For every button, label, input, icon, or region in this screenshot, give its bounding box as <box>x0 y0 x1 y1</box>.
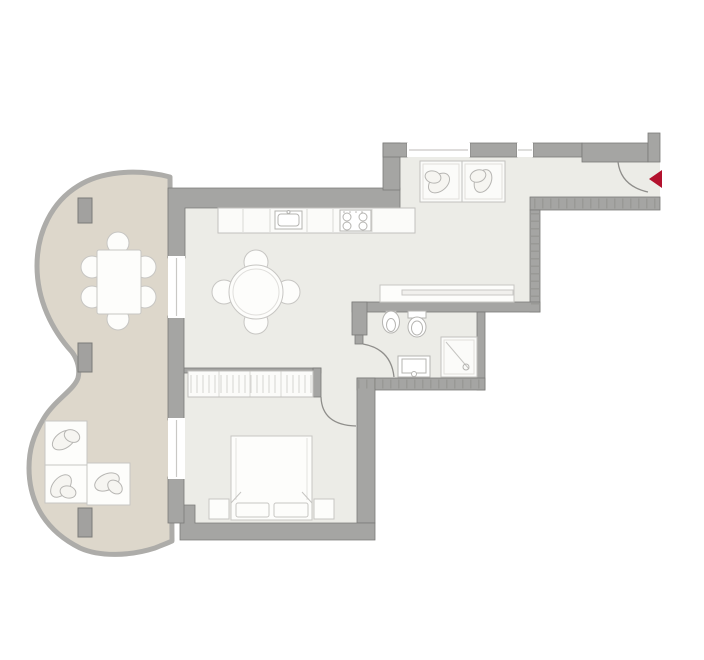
wall <box>168 477 184 523</box>
nightstand <box>209 499 229 519</box>
console-table <box>380 285 514 302</box>
wall-door-stub <box>355 335 363 344</box>
laundry-appliance <box>462 161 505 202</box>
balcony-terrace <box>29 172 172 554</box>
door-leaf-open <box>313 368 321 397</box>
wall <box>383 143 407 157</box>
cooktop-icon <box>340 210 371 231</box>
wall <box>352 302 540 312</box>
wardrobe <box>188 371 313 397</box>
wall <box>533 143 582 157</box>
pillow <box>274 503 308 517</box>
vanity-washbasin-icon <box>398 356 430 377</box>
wall <box>357 378 485 390</box>
wall <box>582 143 648 162</box>
balcony-pillar <box>78 508 92 537</box>
bidet-icon <box>383 311 400 333</box>
wall <box>470 143 517 157</box>
toilet-icon <box>408 311 426 337</box>
sink-icon <box>275 211 302 230</box>
balcony-pillar <box>78 198 92 223</box>
wall <box>530 197 660 210</box>
outdoor-dining-table <box>97 250 141 314</box>
kitchen <box>218 208 415 233</box>
round-dining-table <box>229 265 283 319</box>
floor-plan <box>0 0 704 660</box>
kitchen-counter <box>218 208 415 233</box>
laundry-appliance <box>420 161 462 202</box>
wall <box>357 378 375 523</box>
wall <box>168 316 184 420</box>
shower-icon <box>441 337 477 377</box>
wall-door-jamb <box>648 133 660 162</box>
wall <box>352 302 367 335</box>
floor-plan-canvas <box>0 0 704 660</box>
double-bed <box>231 436 312 520</box>
pillow <box>236 503 269 517</box>
balcony-pillar <box>78 343 92 372</box>
nightstand <box>314 499 334 519</box>
